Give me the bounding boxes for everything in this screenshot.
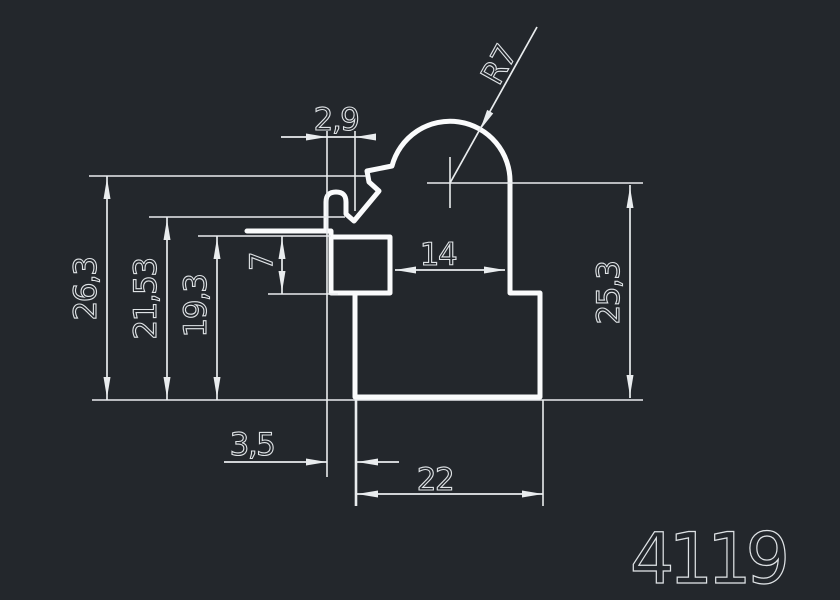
dim-label-width-base: 22 (417, 462, 453, 498)
dim-label-offset-bottom: 3,5 (230, 427, 275, 463)
dim-label-width-top: 2,9 (314, 102, 359, 138)
dim-label-height-total: 26,3 (68, 257, 104, 320)
dim-label-notch-height: 7 (244, 253, 280, 271)
cad-canvas: 26,3 21,53 19,3 7 2,9 14 2 (0, 0, 840, 600)
dim-label-height-right: 25,3 (591, 261, 627, 324)
dim-label-height-mid: 19,3 (178, 274, 214, 337)
drawing-background (0, 0, 840, 600)
dim-label-inner-width: 14 (420, 237, 456, 273)
dim-label-height-upper: 21,53 (128, 258, 164, 339)
part-number: 4119 (630, 518, 786, 600)
